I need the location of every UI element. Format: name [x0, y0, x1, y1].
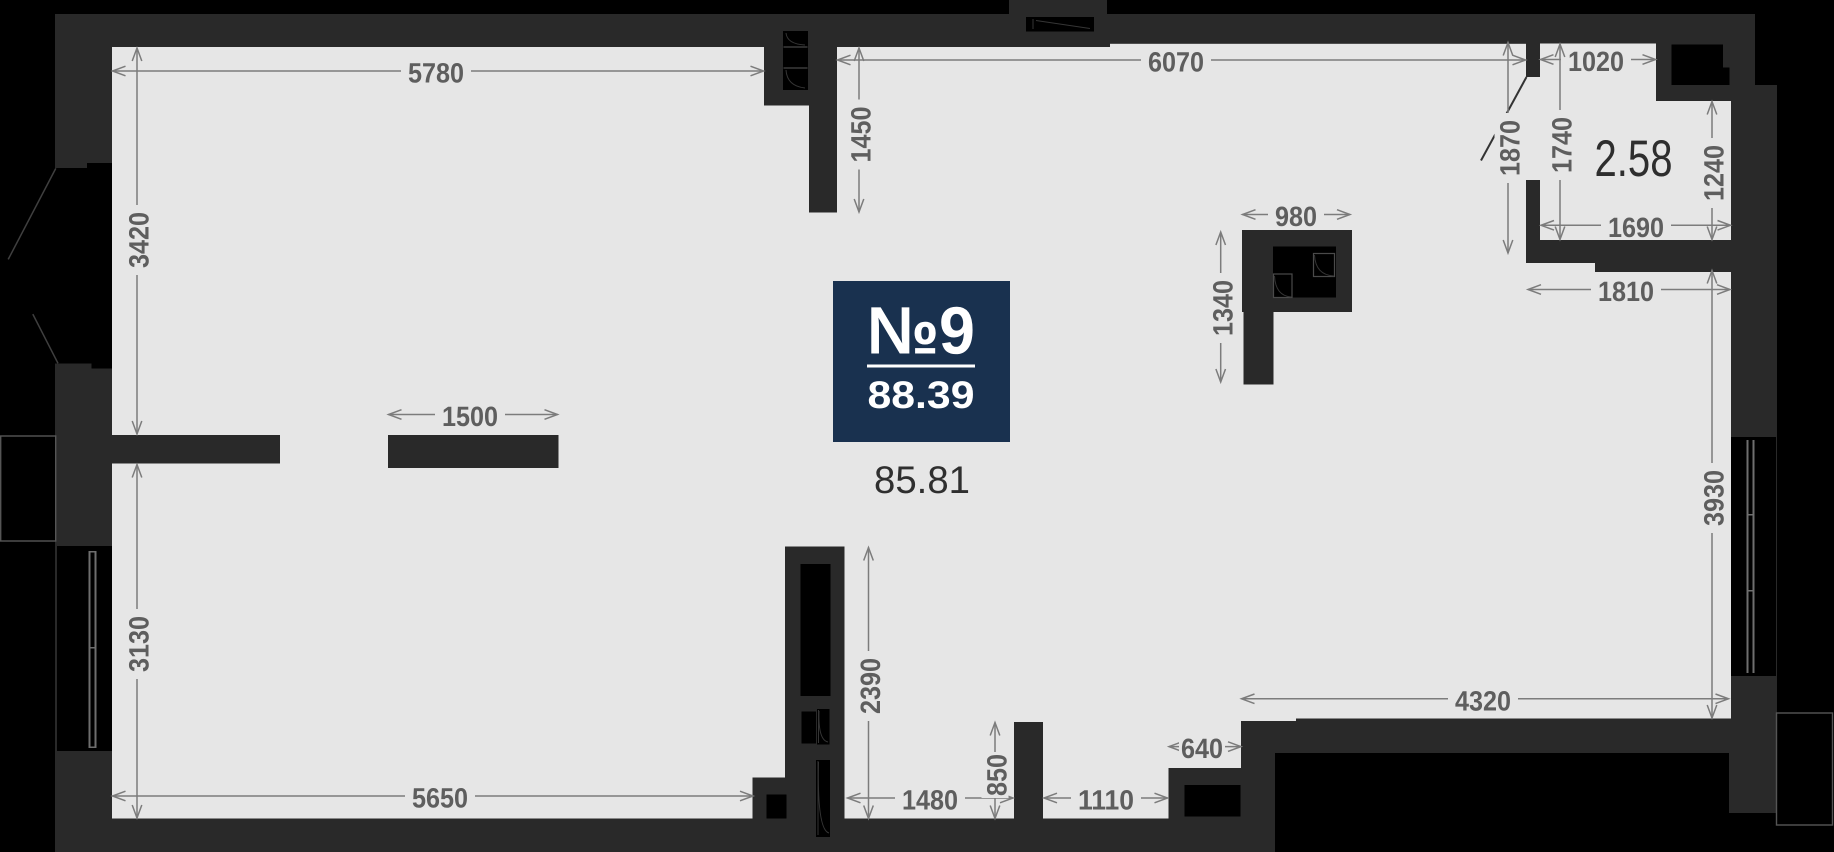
svg-text:640: 640: [1181, 733, 1223, 764]
svg-text:1340: 1340: [1207, 280, 1238, 336]
svg-text:1870: 1870: [1495, 120, 1526, 176]
svg-text:3930: 3930: [1699, 470, 1730, 526]
svg-text:1110: 1110: [1078, 785, 1134, 816]
svg-text:1690: 1690: [1608, 212, 1664, 243]
svg-text:1450: 1450: [846, 107, 877, 163]
svg-text:85.81: 85.81: [874, 459, 970, 502]
svg-text:2390: 2390: [855, 658, 886, 714]
svg-text:850: 850: [982, 754, 1013, 796]
svg-text:88.39: 88.39: [868, 374, 975, 417]
svg-text:1480: 1480: [902, 785, 958, 816]
svg-text:3130: 3130: [124, 616, 155, 672]
svg-text:1740: 1740: [1547, 117, 1578, 173]
svg-text:3420: 3420: [124, 212, 155, 268]
svg-text:2.58: 2.58: [1595, 129, 1673, 187]
svg-text:5650: 5650: [412, 783, 468, 814]
svg-text:6070: 6070: [1148, 47, 1204, 78]
svg-text:4320: 4320: [1455, 685, 1511, 716]
svg-text:№9: №9: [867, 294, 975, 369]
svg-text:1810: 1810: [1598, 276, 1654, 307]
svg-text:980: 980: [1275, 201, 1317, 232]
svg-text:1020: 1020: [1568, 46, 1624, 77]
svg-text:1500: 1500: [442, 401, 498, 432]
svg-text:5780: 5780: [408, 58, 464, 89]
svg-text:1240: 1240: [1699, 145, 1730, 201]
